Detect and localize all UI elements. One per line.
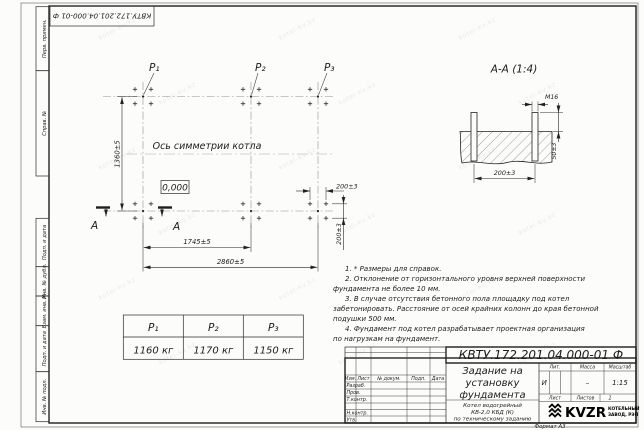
masshtab-label: Масштаб xyxy=(609,365,632,371)
massa-label: Масса xyxy=(580,365,595,371)
col-header-doc: № докум. xyxy=(376,376,401,382)
watermark: kotel-kv.kz xyxy=(157,80,197,106)
row-label-tkontr: Т.контр. xyxy=(347,397,368,403)
note-line: 4. Фундамент под котел разрабатывает про… xyxy=(345,325,585,333)
col-header-list: Лист xyxy=(356,376,369,382)
row-label-prov: Пров. xyxy=(347,390,361,396)
dim-50-text: 50±3 xyxy=(551,142,558,159)
watermark: kotel-kv.kz xyxy=(277,145,317,171)
kvzr-logo: KVZR КОТЕЛЬНЫЙ ЗАВОД, РЭП xyxy=(549,404,640,421)
col-header-podp: Подп. xyxy=(411,376,426,382)
load-point-2 xyxy=(250,95,252,97)
watermark: kotel-kv.kz xyxy=(457,15,497,41)
format-label: Формат А3 xyxy=(534,424,566,430)
top-stamp: КВТУ.172.201.04.000-01 Ф xyxy=(50,6,154,26)
load-table-header: P₃ xyxy=(268,322,279,334)
load-table-value: 1150 кг xyxy=(253,346,294,357)
symmetry-axis-label: Ось симметрии котла xyxy=(153,141,262,152)
anchor-bolt-right xyxy=(532,113,538,162)
margin-label-inv-podl: Инв. № подл. xyxy=(42,379,48,415)
margin-label-podp1: Подп. и дата xyxy=(42,225,48,260)
drawing-subtitle-line: Котел водогрейный xyxy=(463,403,522,409)
lit-value: И xyxy=(542,379,548,387)
note-line: 3. В случае отсутствия бетонного пола пл… xyxy=(345,295,570,303)
load-table-value: 1160 кг xyxy=(133,346,174,357)
margin-label-sprav: Справ. № xyxy=(42,111,48,136)
drawing-canvas: kotel-kv.kz kotel-kv.kz kotel-kv.kz kote… xyxy=(0,0,644,430)
load-point-5 xyxy=(250,210,252,212)
col-header-izm: Изм. xyxy=(345,376,356,382)
notes-block: 1. * Размеры для справок. 2. Отклонение … xyxy=(333,265,599,343)
doc-number: КВТУ.172.201.04.000-01 Ф xyxy=(459,348,623,362)
masshtab-value: 1:15 xyxy=(612,379,628,387)
drawing-subtitle-line: по техническому заданию xyxy=(454,417,532,423)
drawing-sheet: kotel-kv.kz kotel-kv.kz kotel-kv.kz kote… xyxy=(0,0,644,430)
section-letter-right: А xyxy=(172,221,180,233)
margin-label-perv: Перв. примен. xyxy=(42,19,48,58)
kvzr-logo-sub1: КОТЕЛЬНЫЙ xyxy=(608,404,640,412)
left-margin-columns: Перв. примен. Справ. № Подп. и дата Инв.… xyxy=(36,7,49,422)
dim-200h-text: 200±3 xyxy=(336,183,358,191)
watermark: kotel-kv.kz xyxy=(97,275,137,301)
list-label: Лист xyxy=(548,396,561,402)
note-line: подушки 500 мм. xyxy=(333,315,397,323)
row-label-utv: Утв. xyxy=(347,417,357,423)
load-point-4 xyxy=(142,210,144,212)
drawing-title-line: Задание на xyxy=(462,366,523,377)
margin-label-podp2: Подп. и дата xyxy=(42,331,48,366)
note-line: забетонировать. Расстояние от осей крайн… xyxy=(333,305,599,313)
load-table-header: P₁ xyxy=(148,322,159,334)
drawing-title-line: установку xyxy=(465,378,521,389)
lit-label: Лит. xyxy=(548,365,560,371)
top-stamp-number: КВТУ.172.201.04.000-01 Ф xyxy=(53,11,151,20)
m16-text: М16 xyxy=(545,94,558,101)
load-point-3 xyxy=(317,95,319,97)
section-letter-left: А xyxy=(90,220,98,232)
margin-label-vzam: Взам. инв. № xyxy=(42,293,48,328)
kvzr-logo-mark xyxy=(549,405,561,417)
watermark: kotel-kv.kz xyxy=(337,340,377,366)
watermark: kotel-kv.kz xyxy=(337,210,377,236)
drawing-title-line: фундамента xyxy=(459,390,525,401)
leader-p3 xyxy=(319,73,327,95)
dim-200v-text: 200±3 xyxy=(335,223,343,245)
section-view: А-А (1:4) М16 50±3 200±3 xyxy=(460,64,563,184)
load-table-value: 1170 кг xyxy=(193,346,234,357)
watermark: kotel-kv.kz xyxy=(337,80,377,106)
col-header-data: Дата xyxy=(431,376,444,382)
load-point-6 xyxy=(317,210,319,212)
load-table: P₁ P₂ P₃ 1160 кг 1170 кг 1150 кг xyxy=(123,315,303,359)
title-block: Изм. Лист № докум. Подп. Дата Разраб. Пр… xyxy=(345,347,640,430)
leader-p2 xyxy=(252,73,258,95)
watermark: kotel-kv.kz xyxy=(277,15,317,41)
dim-200s-text: 200±3 xyxy=(494,169,516,177)
watermark: kotel-kv.kz xyxy=(277,275,317,301)
leader-p1 xyxy=(144,73,154,95)
row-label-razrab: Разраб. xyxy=(347,383,366,389)
section-title: А-А (1:4) xyxy=(490,64,538,76)
listov-value: 1 xyxy=(608,396,611,402)
dim-2860-text: 2860±5 xyxy=(217,258,244,266)
note-line: 2. Отклонение от горизонтального уровня … xyxy=(345,275,585,283)
anchor-bolt-left xyxy=(471,113,477,162)
kvzr-logo-sub2: ЗАВОД, РЭП xyxy=(608,412,639,418)
plan-view: P₁ P₂ P₃ Ось симметрии котла 0,000 1360±… xyxy=(90,62,358,272)
note-line: по нагрузкам на фундамент. xyxy=(333,335,440,343)
note-line: 1. * Размеры для справок. xyxy=(345,265,441,273)
level-mark-value: 0,000 xyxy=(162,183,188,193)
label-p1: P₁ xyxy=(149,62,160,74)
note-line: фундамента не более 10 мм. xyxy=(333,285,441,293)
dim-1360-text: 1360±5 xyxy=(114,140,122,167)
listov-label: Листов xyxy=(576,396,595,402)
load-table-header: P₂ xyxy=(208,322,219,334)
dim-1745-text: 1745±5 xyxy=(183,238,210,246)
label-p3: P₃ xyxy=(324,62,335,74)
label-p2: P₂ xyxy=(255,62,266,74)
kvzr-logo-text: KVZR xyxy=(565,405,607,421)
drawing-subtitle-line: КВ-2,0 КБД (К) xyxy=(471,410,514,416)
row-label-nkontr: Н.контр. xyxy=(347,411,368,417)
load-point-1 xyxy=(142,95,144,97)
massa-value: – xyxy=(586,379,590,387)
watermark: kotel-kv.kz xyxy=(517,210,557,236)
